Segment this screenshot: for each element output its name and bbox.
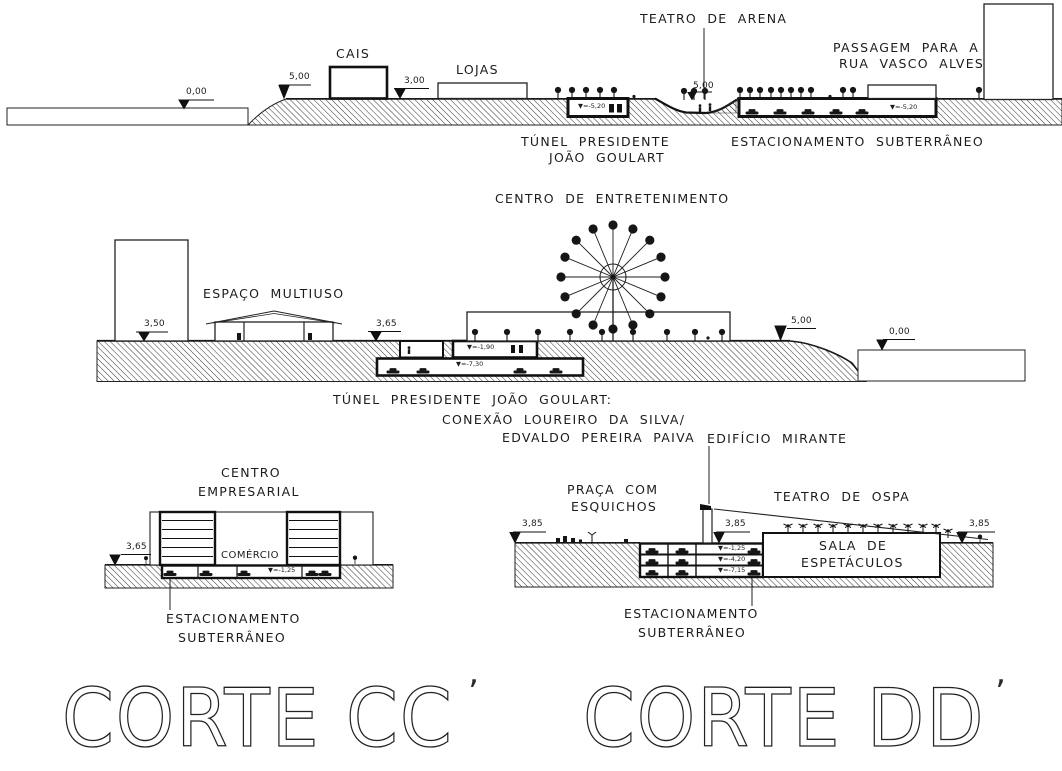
elevation-text-predio: 3,50	[144, 320, 165, 329]
level-text-br-3: ▼=-7,15	[718, 567, 745, 574]
level-text-superior: ▼=-1,90	[467, 344, 494, 351]
level-text-inferior: ▼=-7,30	[456, 361, 483, 368]
edificio-mirante-tower	[703, 509, 712, 543]
espaco-multiuso-tent	[206, 311, 342, 341]
elevation-text-agua-top: 0,00	[186, 88, 207, 97]
elevation-marker-borda	[775, 326, 816, 340]
elevation-text-cais: 5,00	[289, 73, 310, 82]
label-nota-line1: TÚNEL PRESIDENTE JOÃO GOULART:	[333, 393, 612, 406]
label-centro-entretenimento: CENTRO DE ENTRETENIMENTO	[495, 192, 729, 205]
elevation-marker-br-left	[510, 532, 546, 543]
label-nota-line2: CONEXÃO LOUREIRO DA SILVA/	[442, 413, 685, 426]
label-lojas: LOJAS	[456, 63, 499, 76]
label-nota-line3: EDVALDO PEREIRA PAIVA	[502, 431, 695, 444]
elevation-marker-agua-middle	[877, 340, 915, 350]
water-body-middle	[858, 350, 1025, 381]
elevation-text-br-center: 3,85	[725, 520, 746, 529]
elevation-marker-agua-top	[179, 100, 214, 109]
ground-hatch	[248, 99, 1062, 125]
elevation-text-arena: 5,00	[693, 82, 714, 91]
elevation-marker-lojas	[394, 89, 429, 99]
label-edificio-mirante: EDIFÍCIO MIRANTE	[707, 432, 847, 445]
cais-building	[330, 67, 387, 99]
tower-left	[160, 512, 215, 565]
water-body	[7, 108, 248, 125]
level-text-br-1: ▼=-1,25	[718, 545, 745, 552]
passage-volume	[868, 85, 936, 99]
label-teatro-de-arena: TEATRO DE ARENA	[640, 12, 787, 25]
label-estacionamento-bl-2: SUBTERRÂNEO	[178, 631, 286, 644]
elevation-marker-cais	[279, 85, 311, 98]
label-passagem-line2: RUA VASCO ALVES	[839, 57, 984, 70]
elevation-marker-br-center	[714, 532, 750, 543]
elevation-marker-plataforma	[368, 332, 401, 341]
level-text-tunel-top: ▼=-5,20	[578, 103, 605, 110]
corte-dd-teatro-ospa	[510, 446, 995, 606]
lojas-building	[438, 83, 527, 99]
label-tunel-line1: TÚNEL PRESIDENTE	[521, 135, 670, 148]
title-corte-cc-prime: ’	[468, 673, 479, 713]
level-text-parking-top: ▼=-5,20	[890, 104, 917, 111]
tunnel-upper-right-box	[453, 341, 537, 358]
label-sala-line2: ESPETÁCULOS	[801, 556, 904, 569]
label-espaco-multiuso: ESPAÇO MULTIUSO	[203, 287, 344, 300]
elevation-text-plataforma: 3,65	[376, 320, 397, 329]
label-estacionamento-br-1: ESTACIONAMENTO	[624, 607, 759, 620]
label-praca-line2: ESQUICHOS	[571, 500, 657, 513]
drawing-canvas: CORTE CC ’ CORTE DD ’	[0, 0, 1062, 771]
title-corte-dd: CORTE DD	[583, 672, 985, 765]
label-sala-line1: SALA DE	[819, 539, 887, 552]
elevation-marker-br-right	[957, 532, 995, 543]
tunnel-upper-left-box	[400, 341, 443, 358]
label-cais: CAIS	[336, 47, 370, 60]
level-text-br-2: ▼=-4,20	[718, 556, 745, 563]
label-empresarial: EMPRESARIAL	[198, 485, 300, 498]
label-comercio: COMÉRCIO	[221, 550, 279, 561]
title-corte-cc: CORTE CC	[62, 672, 454, 765]
title-corte-dd-prime: ’	[995, 673, 1006, 713]
architectural-section-drawing: CORTE CC ’ CORTE DD ’ CAIS LOJAS TEATRO …	[0, 0, 1062, 771]
label-estacionamento-top: ESTACIONAMENTO SUBTERRÂNEO	[731, 135, 984, 148]
esquichos-fountain	[556, 532, 628, 543]
elevation-text-borda: 5,00	[791, 317, 812, 326]
elevation-text-lojas: 3,00	[404, 77, 425, 86]
label-praca-line1: PRAÇA COM	[567, 483, 658, 496]
label-passagem-line1: PASSAGEM PARA A	[833, 41, 979, 54]
tower-right	[287, 512, 340, 565]
label-tunel-line2: JOÃO GOULART	[549, 151, 665, 164]
label-teatro-ospa: TEATRO DE OSPA	[774, 490, 910, 503]
label-centro: CENTRO	[221, 466, 281, 479]
elevation-text-bl: 3,65	[126, 543, 147, 552]
elevation-text-agua-middle: 0,00	[889, 328, 910, 337]
label-estacionamento-br-2: SUBTERRÂNEO	[638, 626, 746, 639]
corte-dd-centro-empresarial	[105, 512, 393, 610]
level-text-bl: ▼=-1,25	[268, 567, 295, 574]
elevation-text-br-right: 3,85	[969, 520, 990, 529]
label-estacionamento-bl-1: ESTACIONAMENTO	[166, 612, 301, 625]
tall-building-right	[984, 4, 1053, 100]
elevation-text-br-left: 3,85	[522, 520, 543, 529]
